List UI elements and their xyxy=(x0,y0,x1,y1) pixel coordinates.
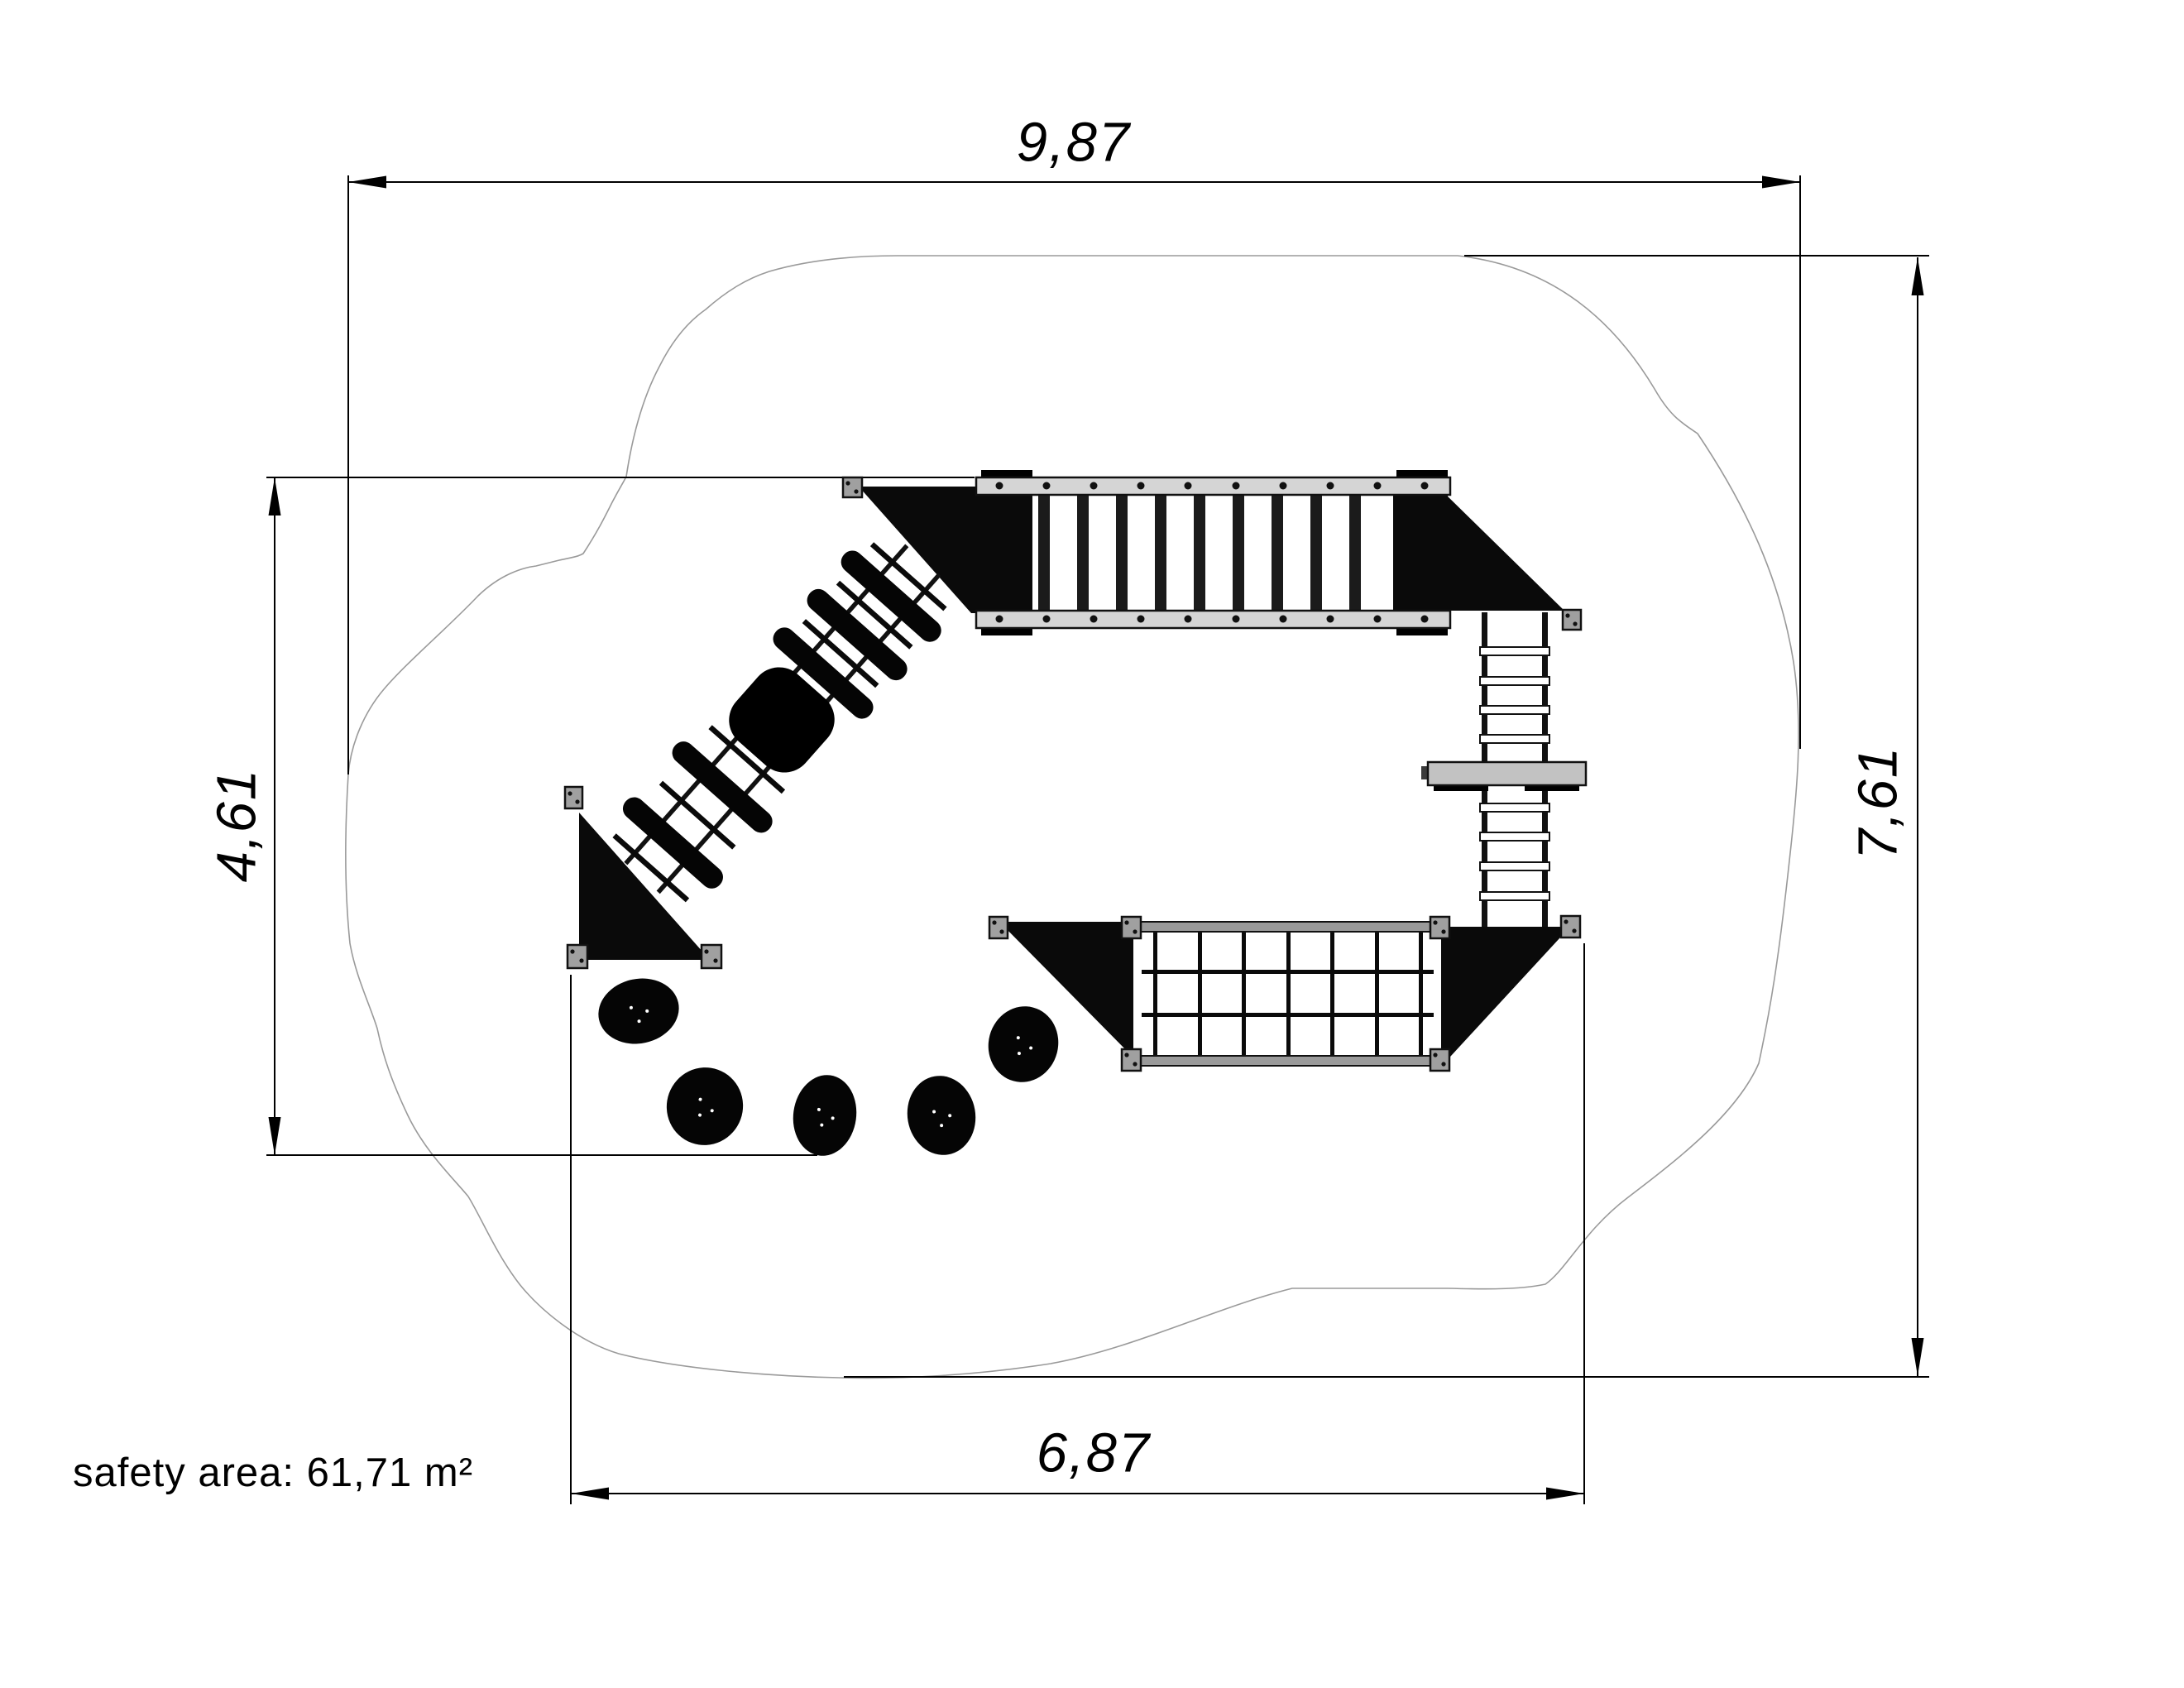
post xyxy=(1430,1049,1449,1071)
stepping-stones xyxy=(592,971,1067,1161)
bridge-rungs xyxy=(1038,495,1361,611)
rail-screws xyxy=(996,482,1429,623)
post xyxy=(565,787,582,808)
arrowhead-down xyxy=(1912,1338,1924,1376)
dimension-label-structure-depth: 4,61 xyxy=(205,768,269,882)
stepping-stone xyxy=(592,971,685,1052)
post xyxy=(568,945,587,968)
dimension-structure-width xyxy=(571,943,1584,1504)
net-rail-bottom xyxy=(1140,1056,1435,1066)
post xyxy=(1122,1049,1141,1071)
diagonal-ramp xyxy=(595,518,970,919)
dimension-overall-width xyxy=(348,175,1800,774)
technical-drawing-canvas: 9,87 7,61 4,61 6,87 safety area: 61,71 m… xyxy=(0,0,2184,1688)
arrowhead-right xyxy=(1762,176,1800,189)
stepping-stone xyxy=(901,1071,981,1161)
ladder-step-bar xyxy=(1428,762,1586,785)
net-rail-top xyxy=(1140,922,1435,932)
post xyxy=(1430,917,1449,938)
stepping-stone xyxy=(656,1057,754,1156)
safety-zone-outline xyxy=(346,256,1798,1378)
net-grid-verticals xyxy=(1153,928,1423,1059)
stepping-stone xyxy=(788,1071,862,1160)
bridge-end-block xyxy=(1393,495,1448,612)
dimension-label-overall-width: 9,87 xyxy=(1017,111,1131,175)
dimension-label-structure-width: 6,87 xyxy=(1037,1422,1151,1485)
stepping-stone xyxy=(980,999,1067,1091)
arrowhead-up xyxy=(269,477,281,516)
arrowhead-left xyxy=(571,1488,609,1500)
ramp-base-triangle xyxy=(579,813,710,960)
post xyxy=(702,945,721,968)
dimension-overall-depth xyxy=(844,256,1929,1377)
vertical-ladder xyxy=(1421,612,1586,928)
post xyxy=(989,917,1008,938)
post xyxy=(1561,916,1580,938)
net-platform-triangle-right xyxy=(1441,927,1570,1067)
rung-bridge xyxy=(859,470,1564,635)
post xyxy=(843,477,862,497)
bridge-platform-triangle-right xyxy=(1446,495,1564,611)
post xyxy=(1122,917,1141,938)
post xyxy=(1563,610,1581,630)
arrowhead-down xyxy=(269,1117,281,1155)
bridge-end-block xyxy=(979,495,1032,612)
arrowhead-right xyxy=(1546,1488,1584,1500)
safety-area-label: safety area: 61,71 m² xyxy=(73,1450,473,1496)
dimension-label-overall-depth: 7,61 xyxy=(1846,746,1910,860)
climbing-net xyxy=(999,922,1570,1067)
arrowhead-left xyxy=(348,176,386,189)
arrowhead-up xyxy=(1912,257,1924,295)
